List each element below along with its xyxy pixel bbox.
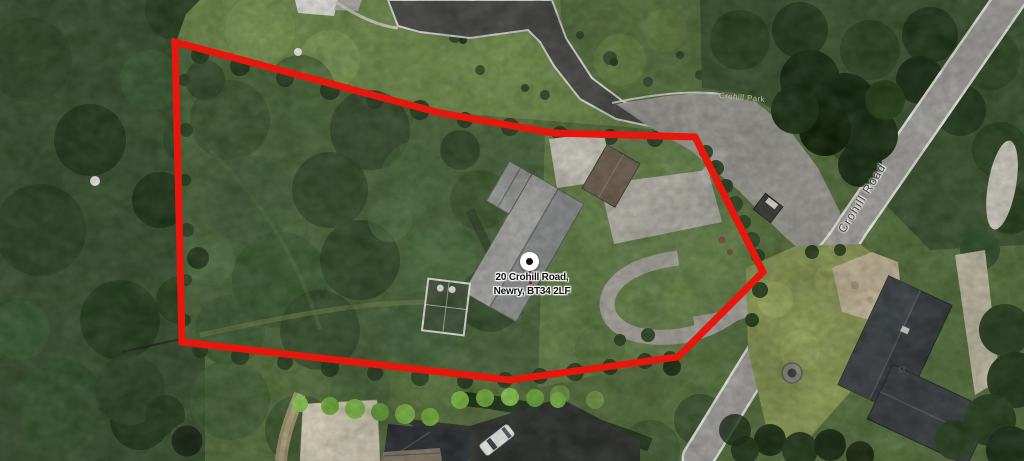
marker-dot-icon bbox=[526, 258, 533, 265]
house-number-label: 17 bbox=[898, 367, 906, 374]
address-line2: Newry, BT34 2LF bbox=[470, 285, 594, 299]
address-line1: 20 Crohill Road, bbox=[470, 271, 594, 285]
satellite-map[interactable]: 20 Crohill Road, Newry, BT34 2LF Crohill… bbox=[0, 0, 1024, 461]
location-marker[interactable] bbox=[520, 252, 539, 271]
marker-address-label: 20 Crohill Road, Newry, BT34 2LF bbox=[470, 271, 594, 298]
property-boundary bbox=[175, 42, 763, 380]
boundary-overlay bbox=[0, 0, 1024, 461]
